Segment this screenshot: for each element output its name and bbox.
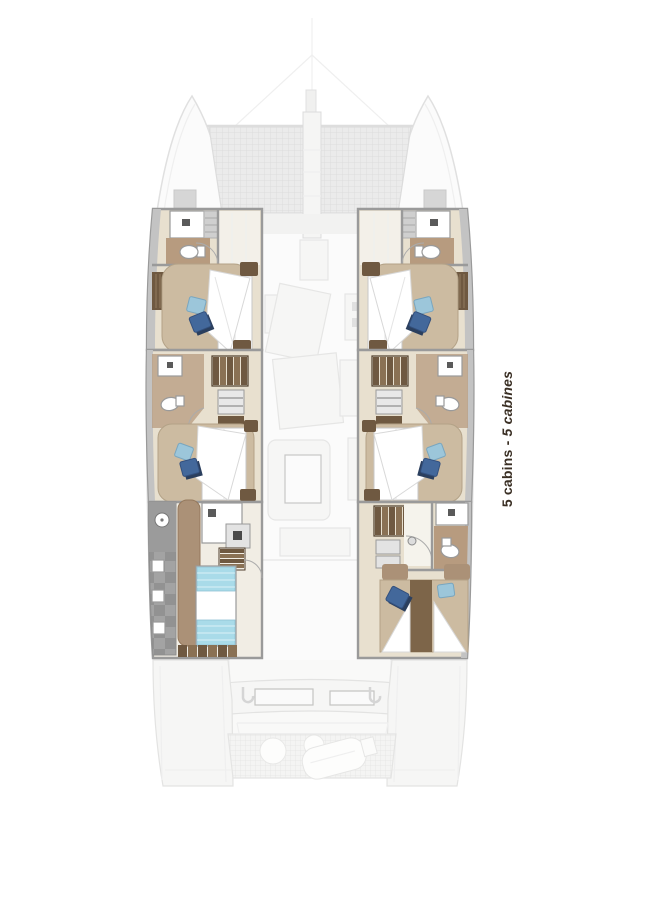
appliance: [153, 622, 165, 634]
transom-steps-port: [153, 660, 233, 786]
caption-separator: -: [499, 436, 515, 449]
shower: [158, 356, 182, 376]
catamaran-floorplan: [0, 0, 663, 897]
bow-hatch-port: [174, 190, 196, 208]
appliance: [152, 590, 164, 602]
shower: [170, 211, 204, 238]
shower-drain: [408, 537, 416, 545]
floorplan-page: 5 cabins - 5 cabines: [0, 0, 663, 897]
fender: [260, 738, 286, 764]
companionway-stairs: [212, 356, 248, 386]
bathroom: [434, 503, 468, 570]
nightstand: [382, 564, 408, 580]
plan-caption: 5 cabins - 5 cabines: [499, 359, 515, 519]
appliance: [152, 560, 164, 572]
transom-steps-starboard: [387, 660, 467, 786]
cabin-port-forward: [147, 209, 262, 353]
galley-port-aft: [149, 500, 262, 658]
nightstand: [244, 420, 258, 432]
appliance: [376, 540, 400, 554]
bed-center-runner: [410, 580, 432, 652]
locker: [204, 211, 218, 238]
nightstand: [240, 489, 256, 501]
entry-landing: [218, 211, 260, 265]
double-bed: [162, 262, 258, 353]
cabin-starboard-mid: [358, 350, 473, 502]
cabin-port-mid: [147, 350, 262, 502]
nightstand: [240, 262, 258, 276]
bow-hatch-starboard: [424, 190, 446, 208]
berth: [192, 566, 236, 646]
caption-french: 5 cabines: [499, 371, 515, 437]
cabin-starboard-aft: [358, 502, 471, 658]
shower-area: [404, 504, 432, 566]
nightstand: [444, 564, 470, 580]
cockpit: [213, 660, 407, 733]
double-bed: [158, 420, 258, 502]
toilet: [180, 246, 205, 259]
caption-english: 5 cabins: [499, 450, 515, 508]
drawer-unit: [218, 390, 244, 426]
cabin-starboard-forward: [358, 209, 473, 353]
